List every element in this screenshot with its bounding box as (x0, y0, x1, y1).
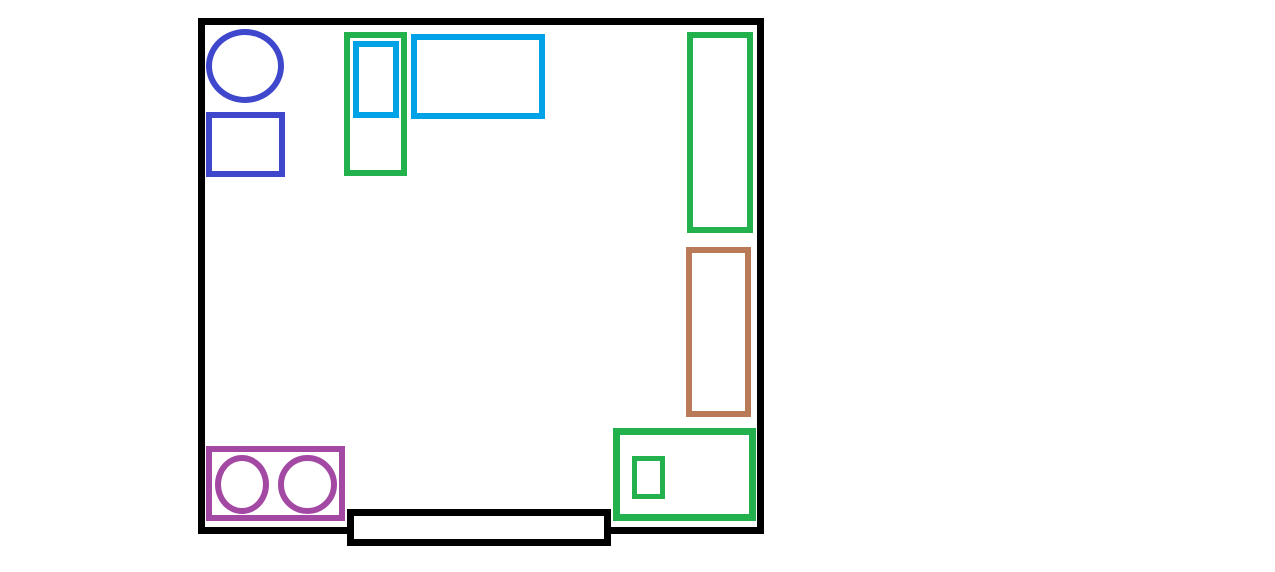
green-tall-rectangle-right (687, 32, 753, 233)
blue-circle-top-left (206, 29, 284, 103)
green-small-box-inside (632, 456, 665, 499)
purple-circle-left-burner (215, 455, 269, 514)
turquoise-wide-rectangle (411, 34, 545, 119)
brown-rectangle-right (686, 247, 751, 417)
turquoise-small-rectangle (353, 41, 399, 118)
purple-circle-right-burner (278, 455, 337, 514)
drawing-canvas (0, 0, 1275, 572)
page (0, 0, 1275, 572)
black-door-rectangle (347, 509, 611, 546)
blue-rectangle-top-left (206, 112, 285, 177)
